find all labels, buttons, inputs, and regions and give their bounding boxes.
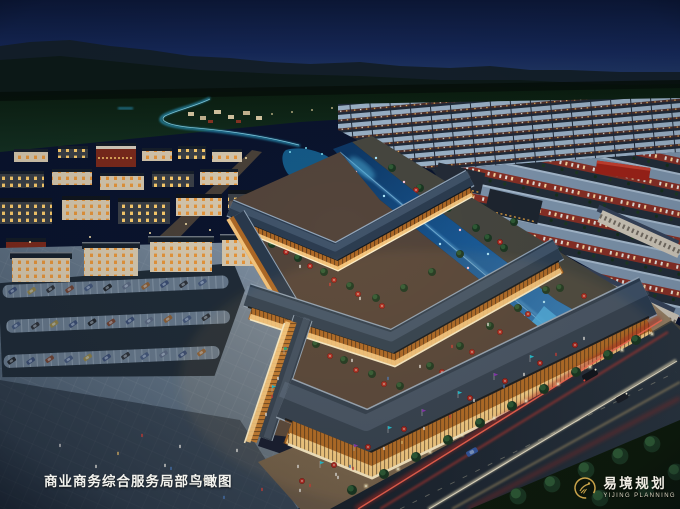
night-scene [0,0,680,509]
vignette [0,0,680,509]
brand-name-zh: 易境规划 [603,477,676,491]
brand-logo: 易境规划 YIJING PLANNING [572,475,676,501]
view-title: 商业商务综合服务局部鸟瞰图 [44,470,233,490]
planning-logo-icon [572,475,598,501]
aerial-rendering: 商业商务综合服务局部鸟瞰图 易境规划 YIJING PLANNING [0,0,680,509]
brand-name-en: YIJING PLANNING [603,493,676,499]
